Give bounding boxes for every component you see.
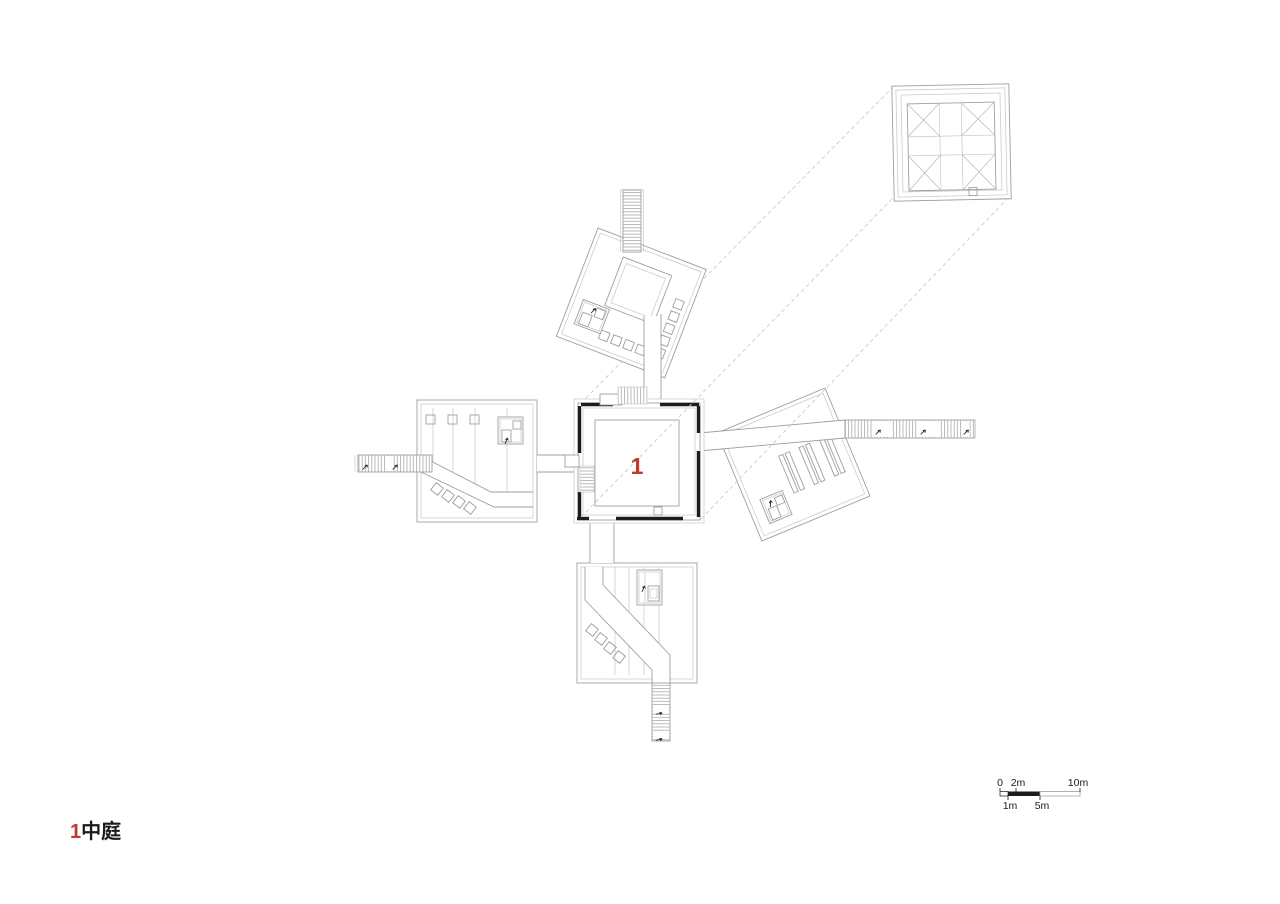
roof-outline [892,84,1011,201]
stair-west [580,466,594,492]
bridge-west-stair [355,455,432,472]
scale-label-2m: 2m [1011,777,1026,789]
legend-name: 中庭 [81,819,121,843]
bridge-north-stair [621,190,644,253]
corridor-south [590,520,614,563]
scale-label-5m: 5m [1035,800,1050,812]
legend-number: 1 [70,821,81,843]
scale-label-1m: 1m [1003,800,1018,812]
bridge-east-stair [845,420,975,438]
bridge-south-stair [652,683,670,742]
pavilion-south [577,563,697,683]
scale-label-10m: 10m [1068,777,1089,789]
site-plan-drawing: 1 0 2m 10m 1m 5m 1中庭 [0,0,1280,904]
scale-bar: 0 2m 10m 1m 5m [997,777,1088,812]
courtyard-number-label: 1 [631,453,644,479]
legend: 1中庭 [70,819,121,843]
toilet-room [498,417,523,444]
pavilion-east-outline [717,388,870,541]
scale-label-0: 0 [997,777,1003,789]
entry-step-west [565,455,579,467]
roof-plan [892,84,1011,201]
architectural-plan-page: 1 0 2m 10m 1m 5m 1中庭 [0,0,1280,904]
stair-north [618,387,647,404]
pavilion-east [717,388,870,541]
toilet-room [637,570,662,605]
pavilion-west [417,400,537,522]
